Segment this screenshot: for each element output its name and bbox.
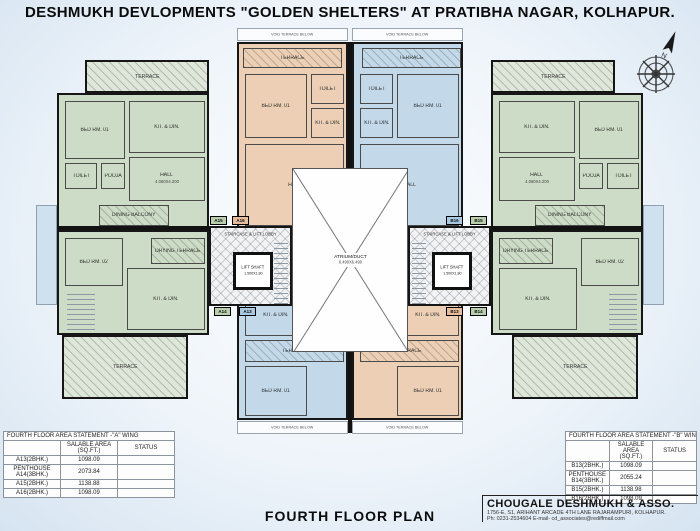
drawing-sheet: DESHMUKH DEVLOPMENTS "GOLDEN SHELTERS" A… [0, 0, 700, 531]
room-drying-terrace: DRYING TERRACE [499, 238, 553, 264]
unit-tag-b16: B16 [446, 216, 463, 225]
room-pooja: POOJA [579, 163, 603, 189]
unit-tag-a15: A15 [210, 216, 227, 225]
unit-tag-b13: B13 [446, 307, 463, 316]
col-area-header: SALABLE AREA(SQ.FT.) [609, 441, 653, 462]
side-terrace-strip [643, 205, 664, 305]
area-statement-table-b-wing: FOURTH FLOOR AREA STATEMENT -"B" WING SA… [565, 431, 697, 504]
col-status-header: STATUS [118, 441, 175, 456]
table-row: PENTHOUSE A14(3BHK.)2073.84 [4, 465, 175, 480]
room-kitchen-dining: KIT. & DIN. [127, 268, 205, 330]
table-title: FOURTH FLOOR AREA STATEMENT -"A" WING [4, 432, 175, 441]
lift-shaft: LIFT SHAFT1.500X1.80 [233, 252, 273, 290]
unit-tag-a14: A14 [214, 307, 231, 316]
lift-shaft: LIFT SHAFT1.500X1.80 [432, 252, 472, 290]
room-bedroom: BED RM. 01 [579, 101, 639, 159]
firm-contact: Ph: 0231-2534604 E-mail- cd_associates@r… [487, 516, 675, 521]
col-status-header: STATUS [653, 441, 697, 462]
table-row: PENTHOUSE B14(3BHK.)2055.24 [566, 471, 697, 486]
room-pooja: POOJA [101, 163, 125, 189]
atrium-duct: ATRIUM/DUCT 6.490X6.490 [292, 168, 408, 352]
table-row: A13(2BHK.)1098.09 [4, 456, 175, 465]
table-row: B15(2BHK.)1138.98 [566, 486, 697, 495]
stair-treads [412, 242, 426, 304]
flat-a-bottom-left-penthouse: BED RM. 02 DRYING TERRACE KIT. & DIN. [57, 230, 209, 335]
room-bedroom: BED RM. 01 [397, 74, 459, 138]
internal-staircase [609, 292, 637, 330]
core-a-staircase-lift: STAIRCASE & LIFT LOBBY LIFT SHAFT1.500X1… [209, 226, 292, 306]
firm-name: CHOUGALE DESHMUKH & ASSO. [487, 498, 696, 510]
terrace-top-right: TERRACE [491, 60, 615, 93]
terrace-bottom-right: TERRACE [512, 335, 638, 399]
room-kitchen-dining: KIT. & DIN. [360, 108, 393, 138]
room-dining-balcony: DINING BALCONY [535, 205, 605, 226]
col-unit-header [566, 441, 610, 462]
table-title: FOURTH FLOOR AREA STATEMENT -"B" WING [566, 432, 697, 441]
void-terrace-strip: VOID TERRACE BELOW [352, 28, 463, 41]
project-title: DESHMUKH DEVLOPMENTS "GOLDEN SHELTERS" A… [0, 4, 700, 21]
room-dining-balcony: DINING BALCONY [99, 205, 169, 226]
void-terrace-strip: VOID TERRACE BELOW [352, 421, 463, 434]
void-terrace-strip: VOID TERRACE BELOW [237, 421, 348, 434]
table-row: B13(2BHK.)1098.09 [566, 462, 697, 471]
firm-block: CHOUGALE DESHMUKH & ASSO. 1756-E, S1, AR… [482, 495, 698, 522]
room-drying-terrace: DRYING TERRACE [151, 238, 205, 264]
area-statement-table-a-wing: FOURTH FLOOR AREA STATEMENT -"A" WING SA… [3, 431, 175, 498]
room-kitchen-dining: KIT. & DIN. [311, 108, 344, 138]
flat-b-bottom-right-penthouse: DRYING TERRACE BED RM. 02 KIT. & DIN. [491, 230, 643, 335]
room-kitchen-dining: KIT. & DIN. [499, 101, 575, 153]
table-row: A15(2BHK.)1138.88 [4, 480, 175, 489]
col-unit-header [4, 441, 61, 456]
compass-rose: N [628, 26, 690, 98]
room-bedroom: BED RM. 01 [245, 74, 307, 138]
core-b-staircase-lift: STAIRCASE & LIFT LOBBY LIFT SHAFT1.500X1… [408, 226, 491, 306]
room-terrace: TERRACE [243, 48, 342, 68]
room-bedroom: BED RM. 02 [65, 238, 123, 286]
firm-address: 1756-E, S1, ARIHANT ARCADE 4TH LANE RAJA… [487, 510, 675, 515]
terrace-top-left: TERRACE [85, 60, 209, 93]
room-hall: HALL4.060X4.200 [499, 157, 575, 201]
unit-tag-a13: A13 [239, 307, 256, 316]
table-row: A16(2BHK.)1098.09 [4, 489, 175, 498]
atrium-label: ATRIUM/DUCT 6.490X6.490 [328, 253, 373, 267]
col-area-header: SALABLE AREA(SQ.FT.) [61, 441, 118, 456]
unit-tag-b14: B14 [470, 307, 487, 316]
room-toilet: TOILET [360, 74, 393, 104]
room-bedroom: BED RM. 01 [65, 101, 125, 159]
room-bedroom: BED RM. 02 [581, 238, 639, 286]
room-kitchen-dining: KIT. & DIN. [129, 101, 205, 153]
side-terrace-strip [36, 205, 57, 305]
void-terrace-strip: VOID TERRACE BELOW [237, 28, 348, 41]
room-kitchen-dining: KIT. & DIN. [499, 268, 577, 330]
terrace-bottom-left: TERRACE [62, 335, 188, 399]
internal-staircase [67, 292, 95, 330]
room-bedroom: BED RM. 01 [245, 366, 307, 416]
flat-b-top-right: KIT. & DIN. HALL4.060X4.200 BED RM. 01 P… [491, 93, 643, 230]
room-terrace: TERRACE [362, 48, 461, 68]
room-hall: HALL4.060X4.200 [129, 157, 205, 201]
room-bedroom: BED RM. 01 [397, 366, 459, 416]
room-toilet: TOILET [607, 163, 639, 189]
unit-tag-b15: B15 [470, 216, 487, 225]
room-toilet: TOILET [65, 163, 97, 189]
stair-treads [274, 242, 288, 304]
unit-tag-a16: A16 [232, 216, 249, 225]
flat-a-top-left: BED RM. 01 TOILET POOJA KIT. & DIN. HALL… [57, 93, 209, 230]
room-toilet: TOILET [311, 74, 344, 104]
